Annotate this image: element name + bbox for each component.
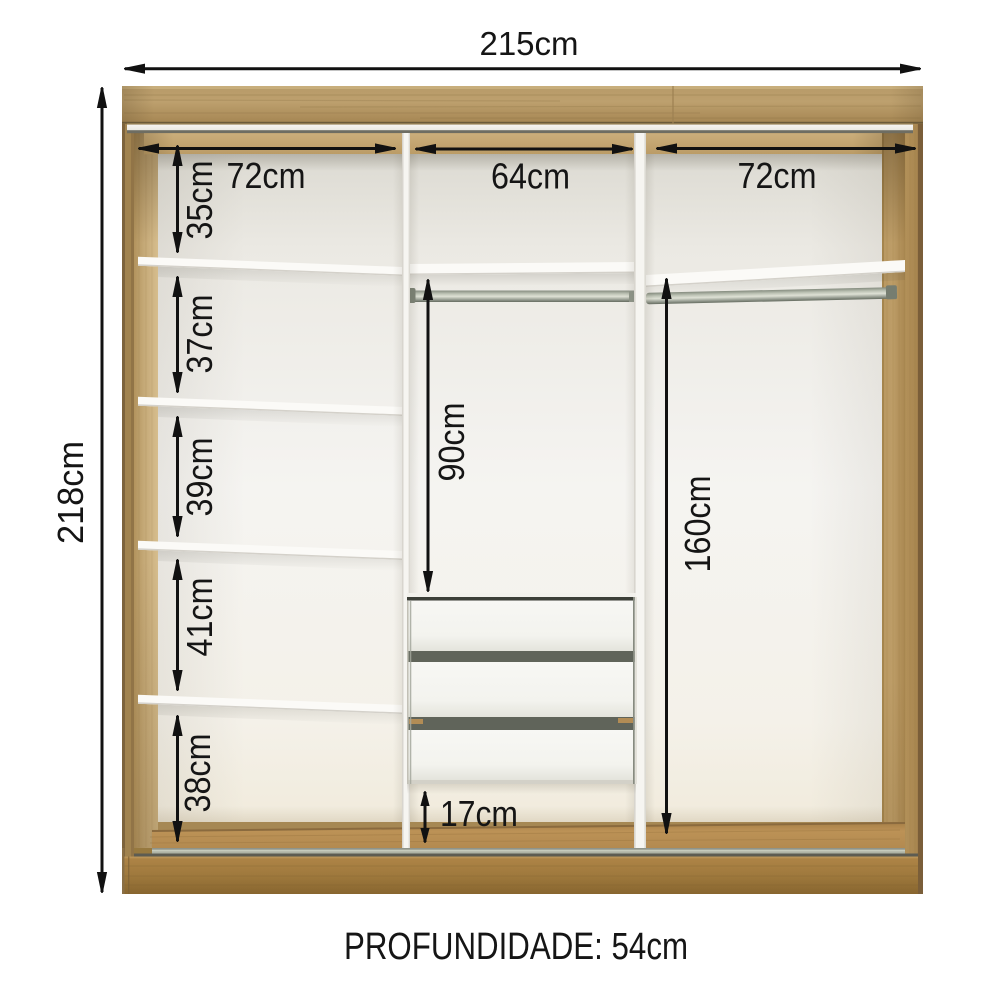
svg-text:160cm: 160cm [677,476,718,573]
svg-text:41cm: 41cm [179,578,220,657]
svg-text:37cm: 37cm [179,295,220,374]
svg-text:90cm: 90cm [431,403,472,482]
svg-text:72cm: 72cm [227,155,306,196]
svg-text:17cm: 17cm [440,793,518,834]
svg-text:39cm: 39cm [179,438,220,517]
svg-text:38cm: 38cm [177,734,218,813]
svg-text:PROFUNDIDADE: 54cm: PROFUNDIDADE: 54cm [344,926,688,968]
svg-text:215cm: 215cm [479,25,578,62]
svg-text:72cm: 72cm [738,155,817,196]
svg-text:64cm: 64cm [491,156,570,197]
svg-text:218cm: 218cm [50,441,91,544]
svg-text:35cm: 35cm [179,161,220,240]
